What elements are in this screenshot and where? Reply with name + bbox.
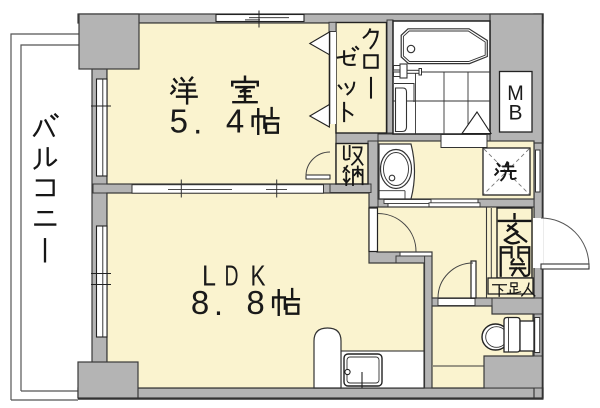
- svg-text:8: 8: [246, 284, 264, 321]
- svg-text:4: 4: [226, 103, 244, 140]
- svg-text:.: .: [193, 104, 202, 141]
- svg-text:.: .: [214, 285, 223, 322]
- svg-text:5: 5: [170, 103, 188, 140]
- svg-text:B: B: [508, 102, 522, 125]
- svg-text:D: D: [225, 261, 239, 293]
- svg-text:8: 8: [191, 284, 209, 321]
